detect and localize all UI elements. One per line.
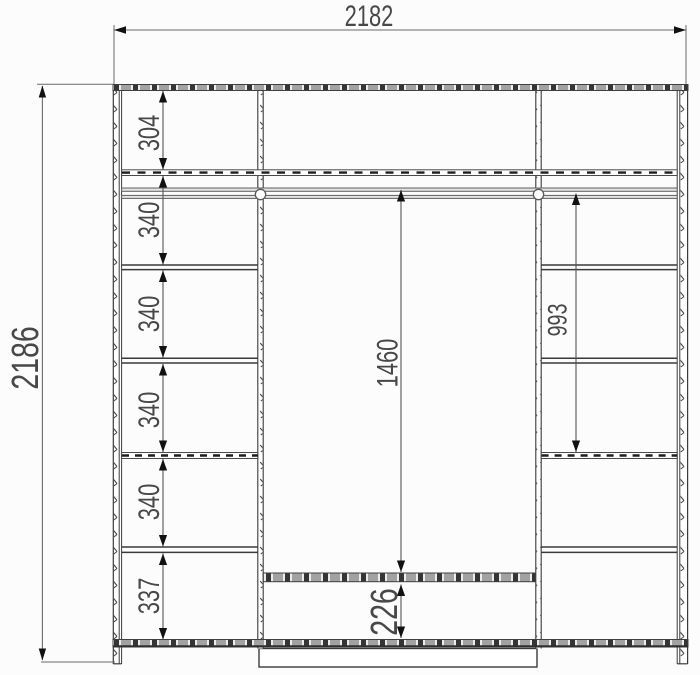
svg-text:337: 337 [132,578,166,615]
svg-text:340: 340 [132,296,166,333]
svg-text:340: 340 [132,202,166,239]
svg-text:2182: 2182 [345,0,394,33]
svg-text:304: 304 [132,115,166,152]
svg-text:340: 340 [132,392,166,429]
svg-text:226: 226 [364,588,406,636]
svg-text:2186: 2186 [5,326,47,389]
svg-text:1460: 1460 [370,339,404,388]
svg-text:993: 993 [544,304,574,337]
svg-text:340: 340 [132,484,166,521]
